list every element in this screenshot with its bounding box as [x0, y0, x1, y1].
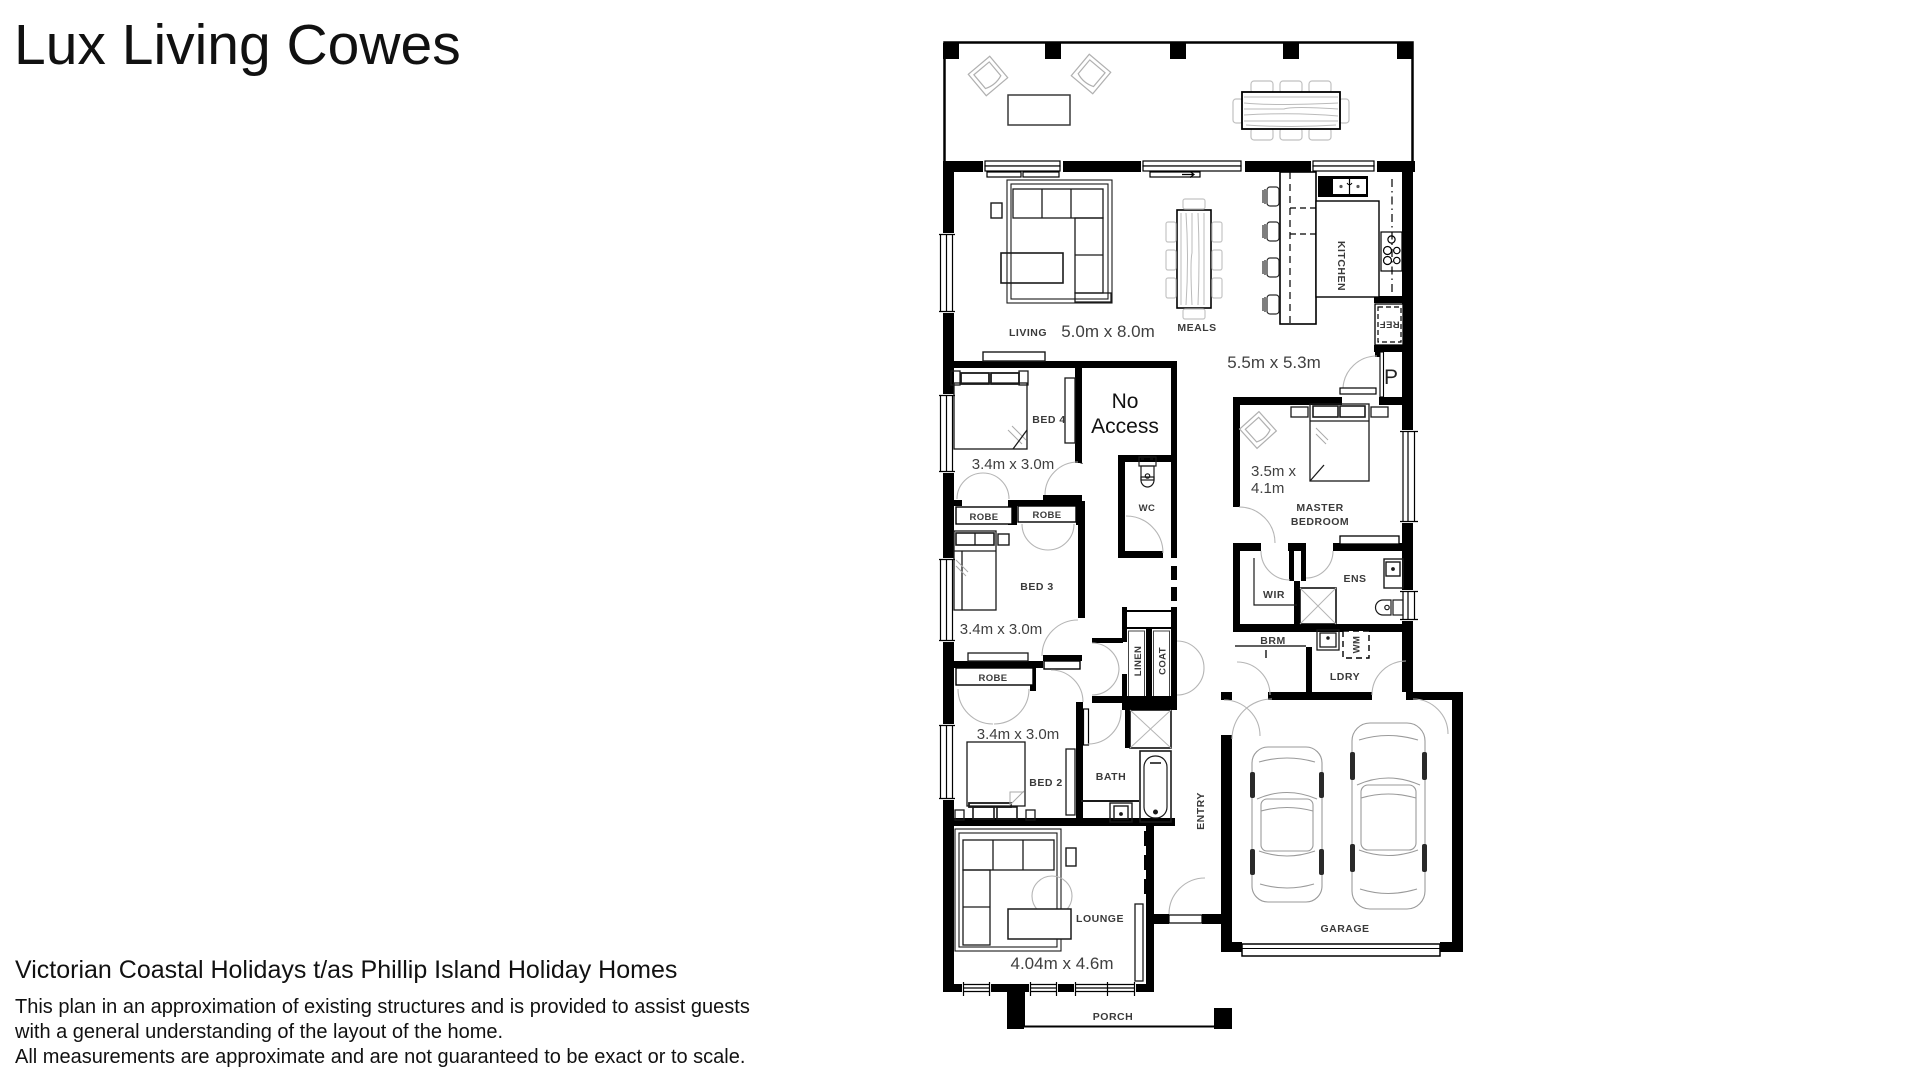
- svg-text:4.1m: 4.1m: [1251, 480, 1284, 497]
- svg-text:MASTER: MASTER: [1296, 502, 1343, 514]
- svg-text:BED 2: BED 2: [1029, 777, 1062, 789]
- svg-text:BEDROOM: BEDROOM: [1291, 516, 1349, 528]
- svg-text:WC: WC: [1139, 503, 1156, 514]
- svg-text:5.0m x 8.0m: 5.0m x 8.0m: [1061, 322, 1155, 341]
- svg-text:LIVING: LIVING: [1009, 327, 1047, 339]
- svg-text:No: No: [1112, 390, 1139, 413]
- svg-text:KITCHEN: KITCHEN: [1335, 241, 1347, 291]
- svg-text:MEALS: MEALS: [1177, 322, 1216, 334]
- svg-text:BRM: BRM: [1260, 635, 1285, 647]
- svg-text:Access: Access: [1091, 415, 1159, 438]
- svg-text:LDRY: LDRY: [1330, 671, 1360, 683]
- svg-text:ROBE: ROBE: [969, 512, 998, 523]
- svg-text:3.4m x 3.0m: 3.4m x 3.0m: [972, 456, 1055, 473]
- svg-text:BATH: BATH: [1096, 771, 1126, 783]
- svg-text:COAT: COAT: [1158, 647, 1169, 675]
- svg-text:3.5m x: 3.5m x: [1251, 463, 1297, 480]
- svg-text:LOUNGE: LOUNGE: [1076, 913, 1124, 925]
- svg-text:LINEN: LINEN: [1133, 646, 1144, 677]
- svg-text:ENTRY: ENTRY: [1195, 792, 1207, 830]
- svg-text:5.5m x 5.3m: 5.5m x 5.3m: [1227, 353, 1321, 372]
- svg-text:REF: REF: [1379, 319, 1399, 330]
- svg-text:ENS: ENS: [1343, 573, 1366, 585]
- svg-text:PORCH: PORCH: [1093, 1011, 1133, 1023]
- svg-text:WM: WM: [1352, 636, 1363, 654]
- svg-text:P: P: [1384, 366, 1398, 389]
- svg-text:3.4m x 3.0m: 3.4m x 3.0m: [977, 726, 1060, 743]
- svg-text:3.4m x 3.0m: 3.4m x 3.0m: [960, 621, 1043, 638]
- svg-text:WIR: WIR: [1263, 589, 1285, 601]
- svg-text:BED 3: BED 3: [1020, 581, 1053, 593]
- svg-text:GARAGE: GARAGE: [1320, 923, 1369, 935]
- svg-text:4.04m x 4.6m: 4.04m x 4.6m: [1011, 954, 1114, 973]
- svg-text:ROBE: ROBE: [978, 673, 1007, 684]
- svg-text:BED 4: BED 4: [1032, 414, 1065, 426]
- svg-text:ROBE: ROBE: [1032, 510, 1061, 521]
